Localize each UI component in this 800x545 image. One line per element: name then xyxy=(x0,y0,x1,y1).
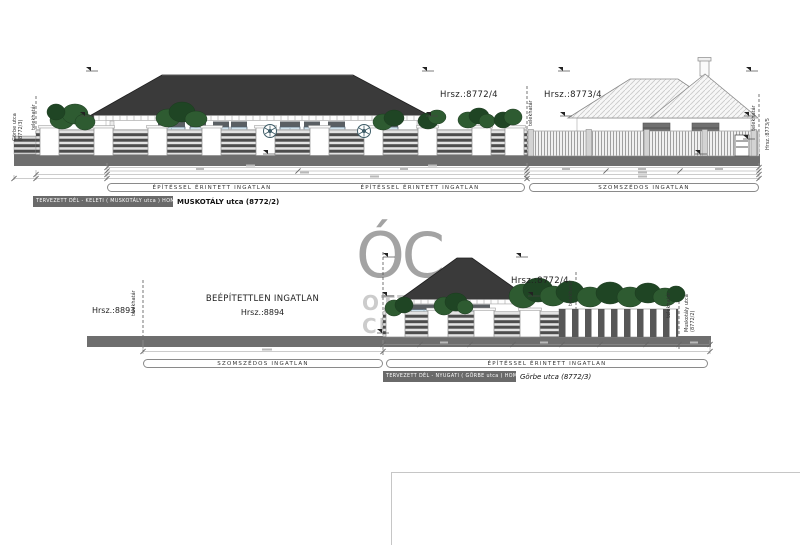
bottom-elevation-graphics xyxy=(87,252,713,357)
elevation-title-badge-top: TERVEZETT DÉL - KELETI ( MUSKOTÁLY utca … xyxy=(33,196,173,207)
main-house-roof xyxy=(86,75,434,118)
parcel-label-8894: Hrsz.:8894 xyxy=(185,308,340,317)
parcel-label-8772-4-bottom: Hrsz.:8772/4 xyxy=(511,276,569,286)
parcel-label-8772-4-top: Hrsz.:8772/4 xyxy=(440,90,498,100)
elevation-title-badge-bottom: TERVEZETT DÉL - NYUGATI ( GÖRBE utca ) H… xyxy=(383,371,516,382)
bottom-bar-fence xyxy=(559,309,678,337)
bottom-main-fence xyxy=(383,308,560,337)
parcel-label-8893: Hrsz.:8893 xyxy=(92,306,135,315)
top-elevation-graphics xyxy=(11,58,761,182)
elevation-drawing-svg xyxy=(0,0,800,545)
parcel-label-8773-5: Hrsz.:8773/5 xyxy=(766,118,772,150)
boundary-label-bottom-left: telekhatár xyxy=(132,290,138,316)
boundary-label-top-left: telekhatár xyxy=(32,104,38,130)
neighbor-gate-box xyxy=(735,135,749,156)
street-label-muskotaly-utca: Muskotály utca(8772/2) xyxy=(685,294,696,332)
zone-label-neighbor-bottom: SZOMSZÉDOS INGATLAN xyxy=(143,359,383,368)
zone-label-neighbor-top: SZOMSZÉDOS INGATLAN xyxy=(529,183,759,192)
zone-label-affected-bottom: ÉPÍTÉSSEL ÉRINTETT INGATLAN xyxy=(386,359,708,368)
boundary-label-bottom-mid: telekhatár xyxy=(569,280,575,306)
top-main-fence xyxy=(36,126,527,156)
street-ref-gorbe: Görbe utca (8772/3) xyxy=(520,373,591,381)
bottom-ground xyxy=(87,336,711,347)
drawing-sheet: ÓC OTTHON CENTRUM xyxy=(0,0,800,545)
boundary-label-top-right: telekhatár xyxy=(752,105,758,131)
street-label-gorbe-utca: Görbe utca(8772/3) xyxy=(13,113,24,141)
title-block-border-left xyxy=(391,472,392,545)
neighbor-fence xyxy=(528,130,759,157)
zone-label-affected-top: ÉPÍTÉSSEL ÉRINTETT INGATLANÉPÍTÉSSEL ÉRI… xyxy=(107,183,525,192)
boundary-label-top-mid: telekhatár xyxy=(529,100,535,126)
title-block-border-top xyxy=(391,472,800,473)
parcel-label-8773-4: Hrsz.:8773/4 xyxy=(544,90,602,100)
empty-lot-title: BEÉPÍTETTLEN INGATLAN xyxy=(185,294,340,304)
boundary-label-bottom-right: telekhatár xyxy=(667,292,673,318)
street-ref-muskotaly: MUSKOTÁLY utca (8772/2) xyxy=(177,198,279,206)
